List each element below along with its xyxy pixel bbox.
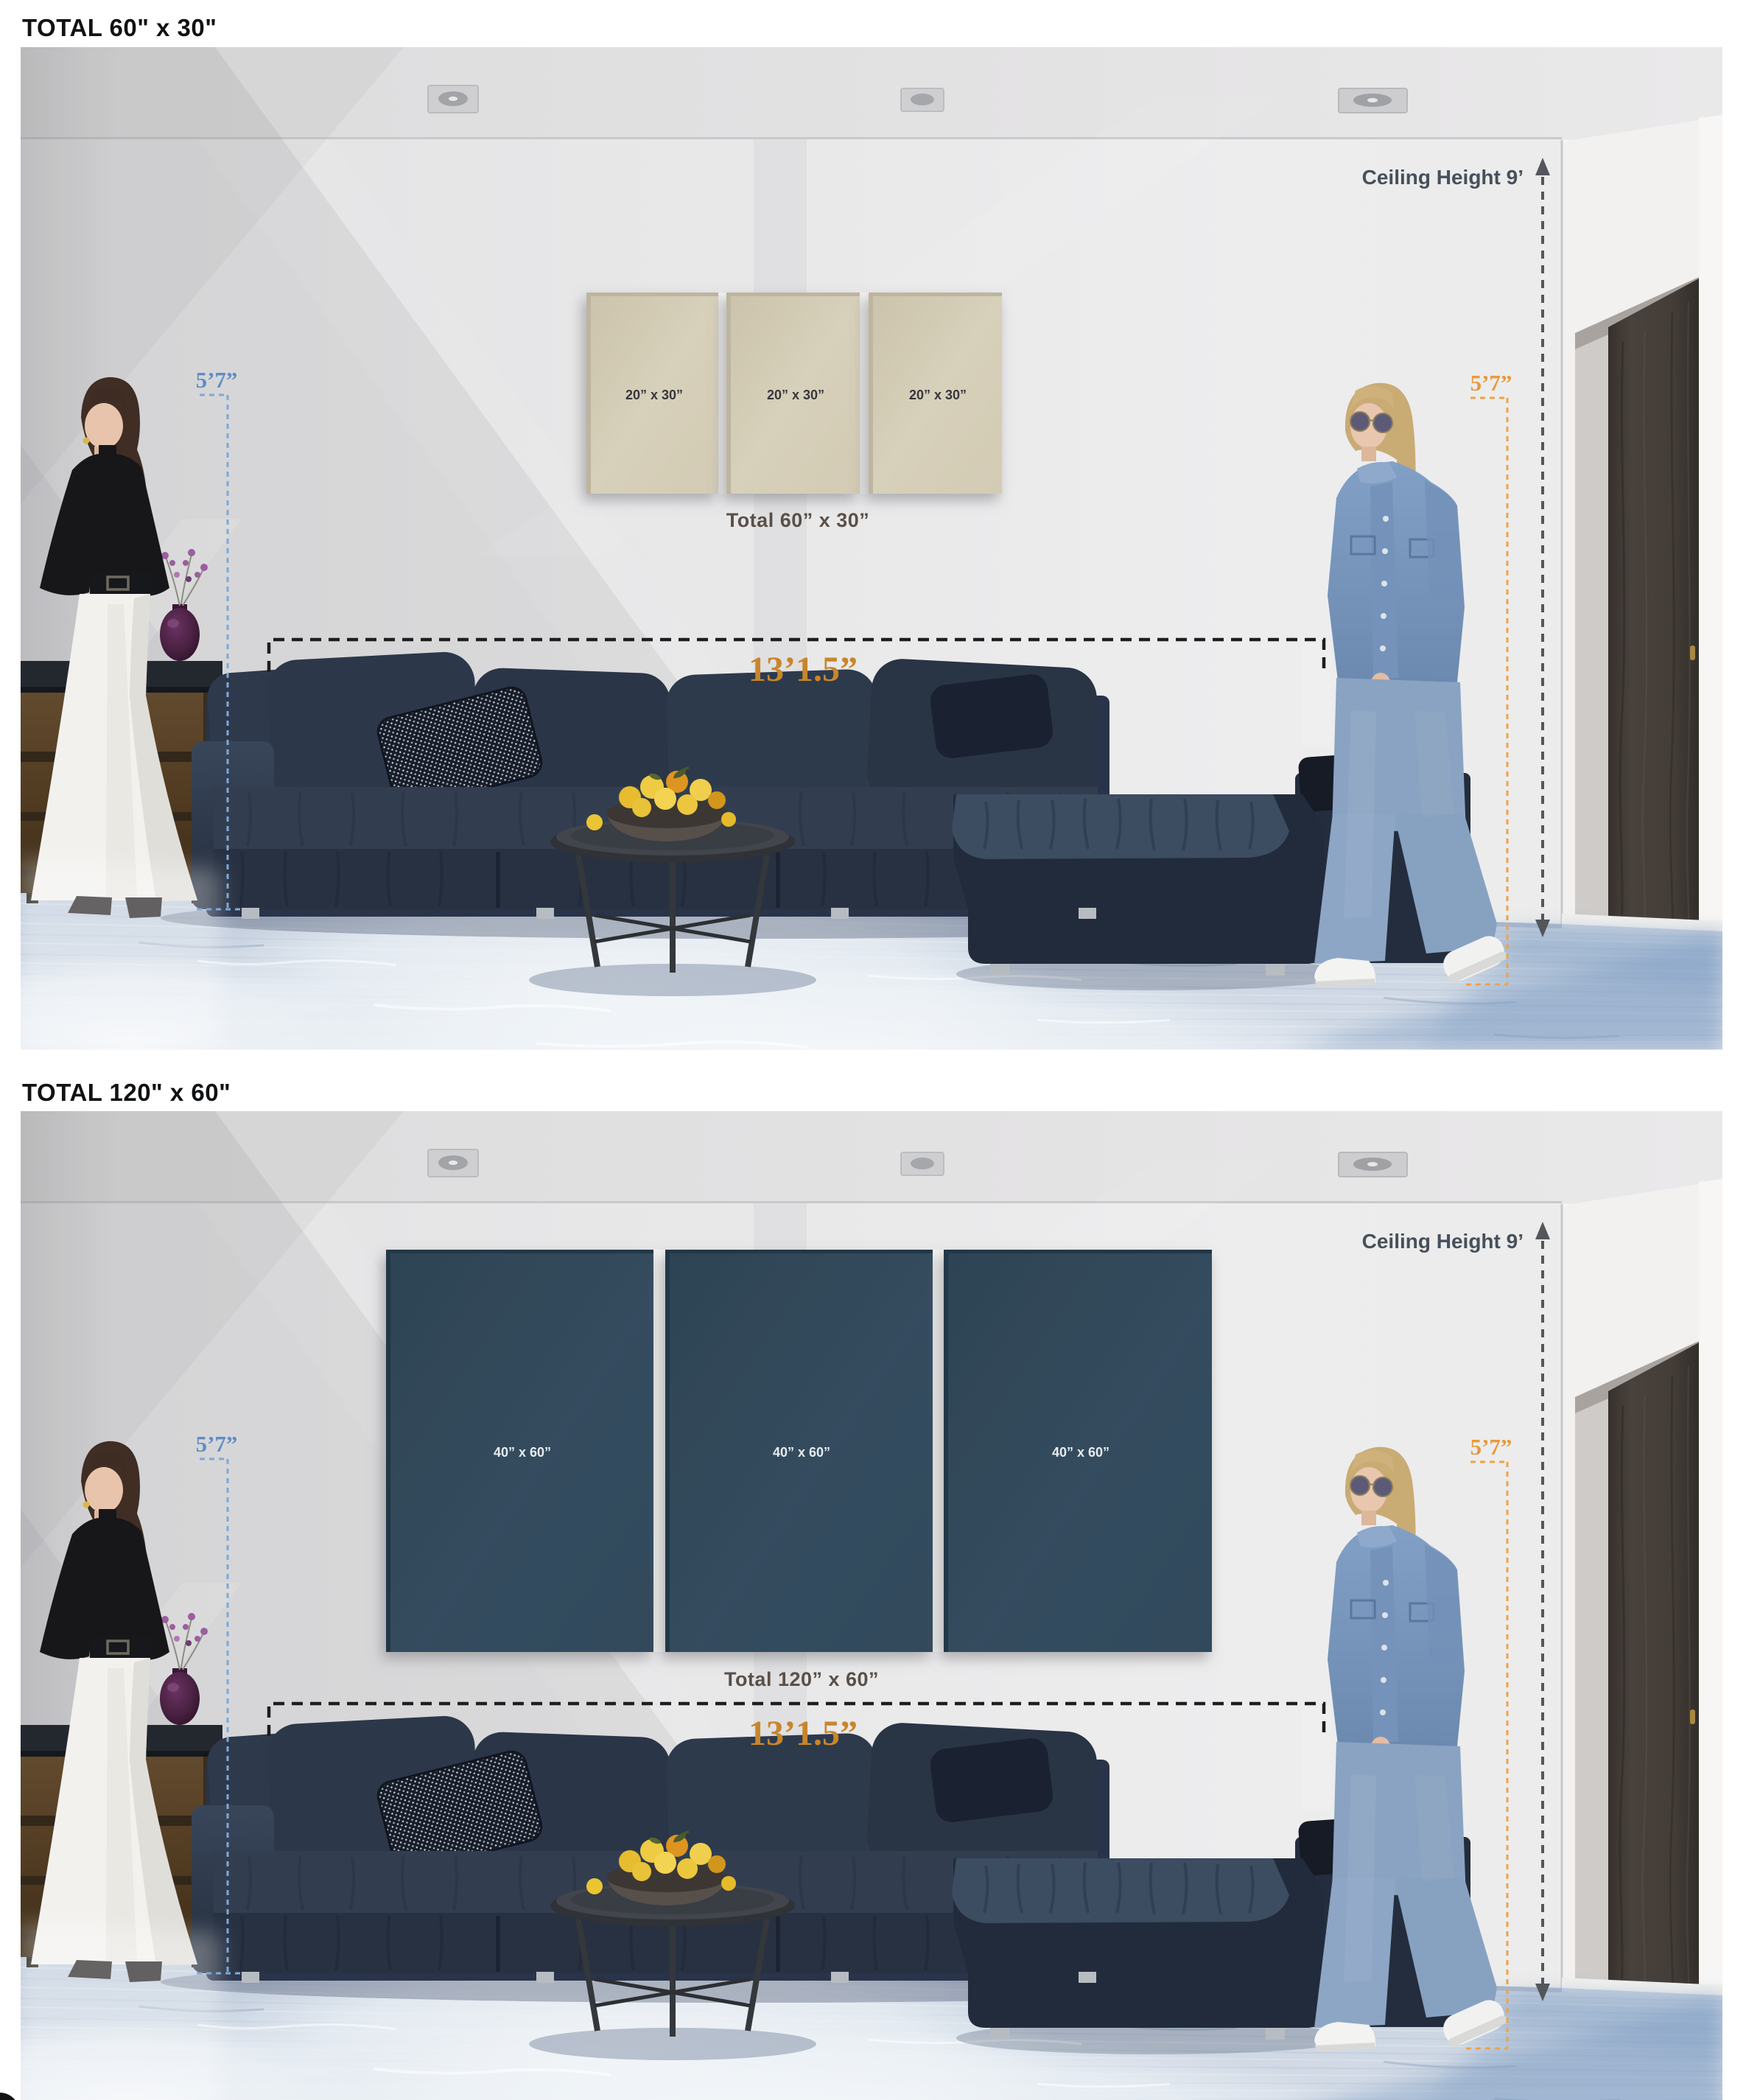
svg-text:20” x 30”: 20” x 30”	[625, 388, 683, 402]
svg-text:40” x 60”: 40” x 60”	[773, 1445, 830, 1460]
svg-text:Total 60” x 30”: Total 60” x 30”	[726, 509, 870, 531]
svg-text:20” x 30”: 20” x 30”	[767, 388, 824, 402]
svg-text:5’7”: 5’7”	[1470, 370, 1512, 396]
svg-text:Ceiling Height 9’: Ceiling Height 9’	[1362, 1230, 1524, 1253]
svg-text:5’7”: 5’7”	[1470, 1434, 1512, 1460]
svg-text:5’7”: 5’7”	[196, 1431, 238, 1457]
svg-text:40” x 60”: 40” x 60”	[494, 1445, 551, 1460]
svg-text:13’1.5”: 13’1.5”	[748, 650, 858, 689]
svg-text:40” x 60”: 40” x 60”	[1052, 1445, 1109, 1460]
svg-text:Ceiling Height 9’: Ceiling Height 9’	[1362, 166, 1524, 189]
svg-text:Total 120” x 60”: Total 120” x 60”	[724, 1668, 879, 1690]
svg-text:5’7”: 5’7”	[196, 367, 238, 393]
svg-text:20” x 30”: 20” x 30”	[909, 388, 967, 402]
svg-text:13’1.5”: 13’1.5”	[748, 1714, 858, 1753]
